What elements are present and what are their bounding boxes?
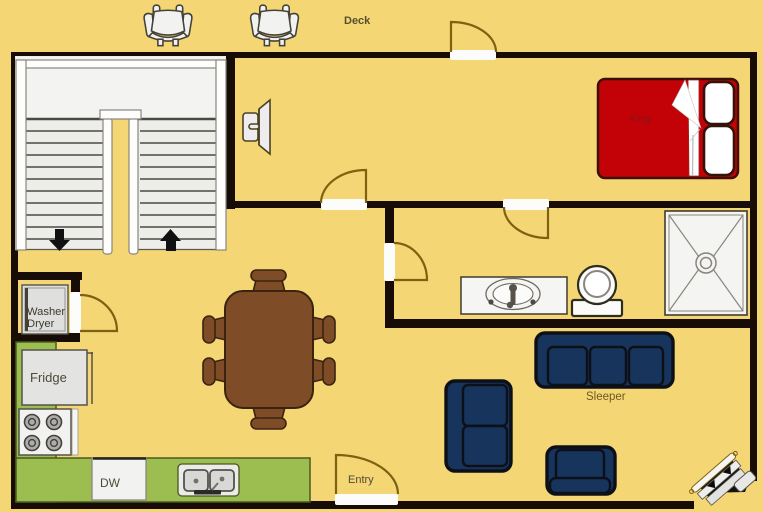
svg-text:Dryer: Dryer (27, 318, 55, 330)
svg-text:Entry: Entry (348, 474, 374, 486)
svg-text:King: King (629, 113, 651, 125)
svg-text:Sleeper: Sleeper (586, 391, 626, 403)
svg-text:Washer: Washer (27, 306, 65, 318)
svg-text:DW: DW (100, 476, 121, 490)
svg-text:Fridge: Fridge (30, 370, 67, 385)
svg-text:Deck: Deck (344, 15, 371, 27)
